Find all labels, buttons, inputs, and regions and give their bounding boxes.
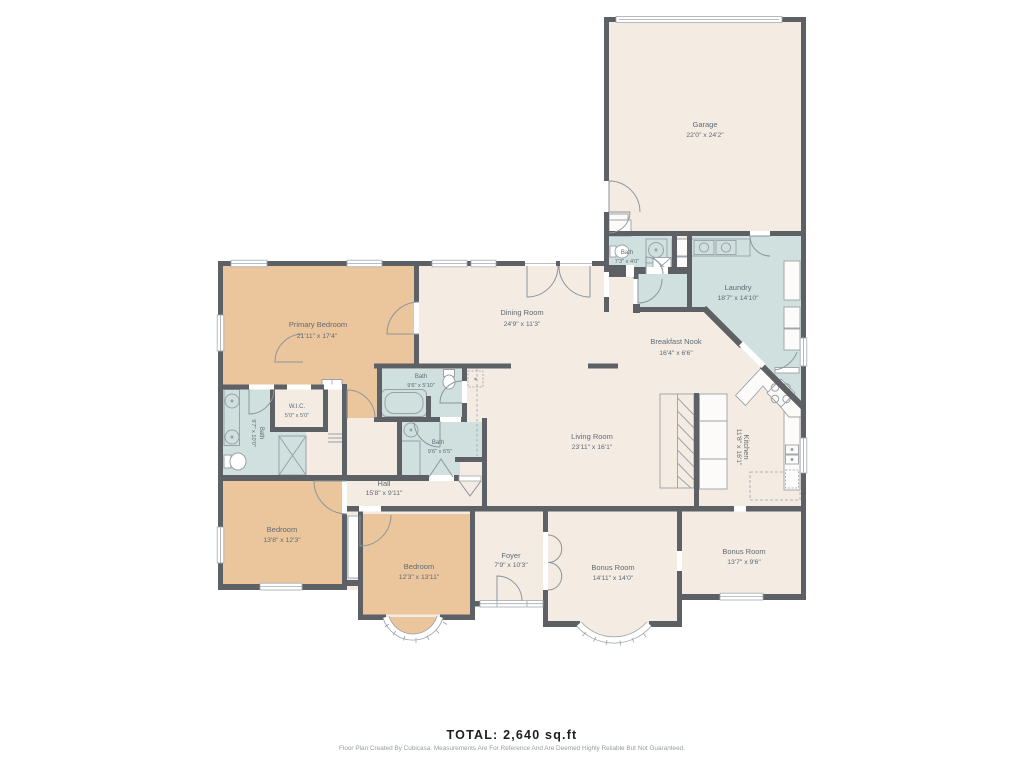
- svg-text:Living Room: Living Room: [571, 432, 613, 441]
- svg-text:Laundry: Laundry: [724, 283, 751, 292]
- svg-text:Floor Plan Created By Cubicasa: Floor Plan Created By Cubicasa. Measurem…: [339, 745, 685, 752]
- svg-text:Bedroom: Bedroom: [404, 562, 434, 571]
- svg-text:7'9" x 10'3": 7'9" x 10'3": [494, 562, 528, 569]
- svg-text:16'4" x 6'6": 16'4" x 6'6": [659, 350, 693, 357]
- svg-text:5'0" x 5'0": 5'0" x 5'0": [285, 413, 309, 419]
- svg-text:21'11" x 17'4": 21'11" x 17'4": [297, 333, 338, 340]
- svg-text:12'3" x 13'11": 12'3" x 13'11": [399, 574, 440, 581]
- svg-text:13'7" x 9'6": 13'7" x 9'6": [727, 559, 761, 566]
- svg-text:Bath: Bath: [258, 427, 264, 439]
- svg-text:24'9" x 11'3": 24'9" x 11'3": [504, 321, 541, 328]
- svg-text:Bath: Bath: [415, 374, 427, 380]
- svg-text:TOTAL: 2,640 sq.ft: TOTAL: 2,640 sq.ft: [447, 728, 578, 742]
- svg-text:15'8" x 9'11": 15'8" x 9'11": [366, 490, 403, 497]
- svg-text:Kitchen: Kitchen: [742, 434, 751, 459]
- svg-text:13'8" x 12'3": 13'8" x 12'3": [263, 537, 301, 544]
- svg-text:Hall: Hall: [378, 479, 391, 488]
- svg-text:Bonus Room: Bonus Room: [591, 563, 634, 572]
- svg-text:Primary Bedroom: Primary Bedroom: [289, 320, 347, 329]
- svg-text:9'6" x 6'5": 9'6" x 6'5": [428, 449, 452, 455]
- svg-text:Bonus Room: Bonus Room: [722, 547, 765, 556]
- svg-text:Bath: Bath: [432, 440, 444, 446]
- svg-text:Bedroom: Bedroom: [267, 525, 297, 534]
- svg-text:Breakfast Nook: Breakfast Nook: [650, 337, 702, 346]
- svg-text:9'7" x 10'0": 9'7" x 10'0": [250, 419, 256, 447]
- svg-text:Garage: Garage: [692, 120, 717, 129]
- svg-text:9'6" x 5'10": 9'6" x 5'10": [407, 383, 435, 389]
- svg-text:7'3" x 4'0": 7'3" x 4'0": [615, 259, 639, 265]
- svg-text:23'11" x 16'1": 23'11" x 16'1": [572, 444, 613, 451]
- svg-text:Dining Room: Dining Room: [500, 308, 543, 317]
- svg-text:14'11" x 14'0": 14'11" x 14'0": [593, 575, 634, 582]
- svg-text:Bath: Bath: [621, 250, 633, 256]
- svg-text:W.I.C.: W.I.C.: [289, 404, 306, 410]
- svg-text:Foyer: Foyer: [501, 551, 521, 560]
- svg-text:18'7" x 14'10": 18'7" x 14'10": [717, 295, 759, 302]
- svg-text:22'0" x 24'2": 22'0" x 24'2": [686, 132, 724, 139]
- svg-text:11'8" x 16'1": 11'8" x 16'1": [735, 429, 742, 466]
